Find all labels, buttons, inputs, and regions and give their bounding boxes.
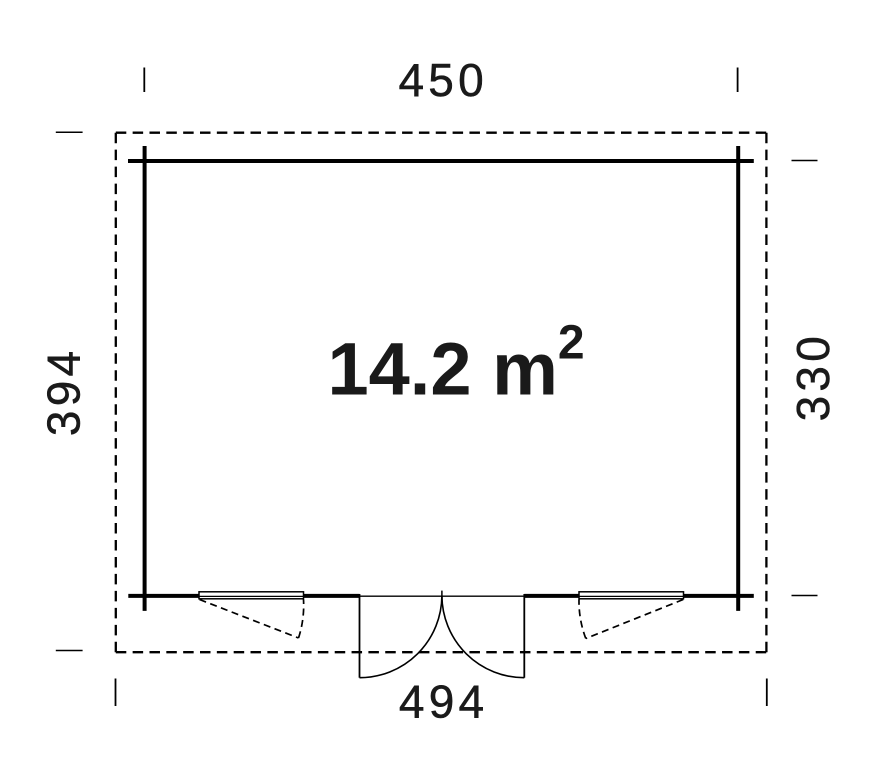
svg-text:14.2 m2: 14.2 m2 (328, 317, 585, 411)
svg-text:450: 450 (399, 54, 488, 106)
svg-text:394: 394 (37, 347, 89, 436)
svg-text:330: 330 (787, 332, 839, 421)
svg-text:494: 494 (399, 676, 488, 728)
